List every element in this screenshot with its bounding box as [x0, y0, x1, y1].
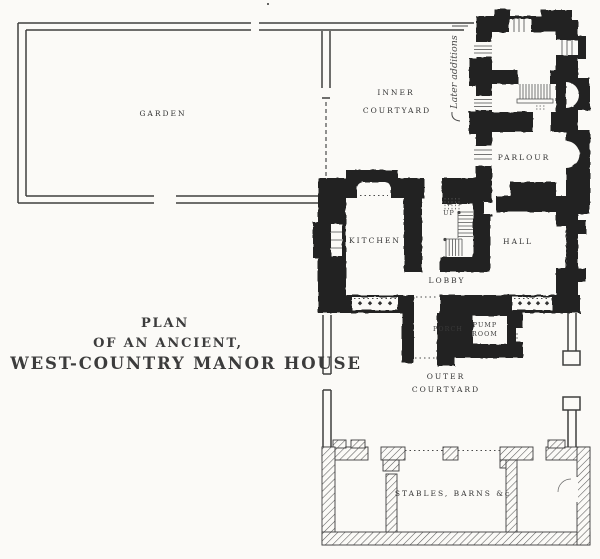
parlour-label: PARLOUR — [498, 153, 551, 162]
stables-label: STABLES, BARNS &c — [395, 489, 511, 498]
scanned-floor-plan-page: GARDEN INNER COURTYARD PARLOUR KITCHEN H… — [0, 0, 600, 559]
pump-room-label-line1: PUMP — [473, 322, 498, 329]
hall-label: HALL — [503, 237, 533, 246]
outer-courtyard-label-line2: COURTYARD — [412, 385, 480, 394]
pump-room-label-line2: ROOM — [472, 331, 498, 338]
inner-courtyard-label-line2: COURTYARD — [363, 106, 431, 115]
ink-speck — [267, 3, 269, 5]
kitchen-label: KITCHEN — [349, 236, 401, 245]
stable-door-niche — [571, 477, 578, 502]
porch-label: PORCH — [433, 326, 463, 333]
lobby-label: LOBBY — [429, 276, 466, 285]
title-line3: WEST-COUNTRY MANOR HOUSE — [9, 354, 361, 373]
title-line1: PLAN — [141, 316, 189, 331]
outer-courtyard-label-line1: OUTER — [427, 372, 466, 381]
stair-up-label: UP — [443, 210, 455, 217]
inner-courtyard-label-line1: INNER — [377, 88, 414, 97]
title-line2: OF AN ANCIENT, — [93, 336, 243, 351]
floor-plan-drawing: GARDEN INNER COURTYARD PARLOUR KITCHEN H… — [0, 0, 600, 559]
later-additions-label: Later additions — [449, 35, 460, 110]
garden-label: GARDEN — [139, 109, 186, 118]
